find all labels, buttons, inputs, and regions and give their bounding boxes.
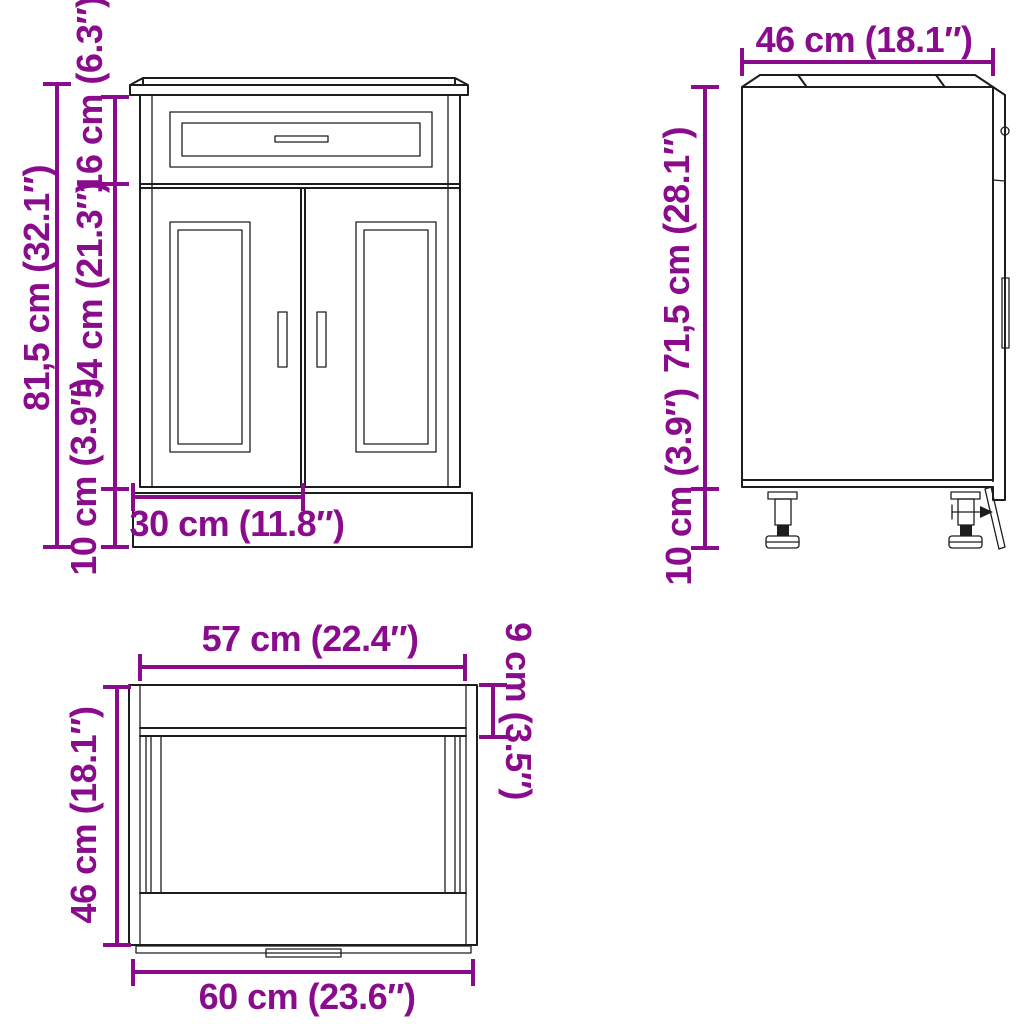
side-view-drawing [693, 50, 1009, 549]
top-view-drawing [105, 656, 505, 984]
front-countertop [130, 78, 468, 95]
front-door-split [301, 188, 305, 487]
top-front-rail [140, 728, 466, 736]
side-door-joint-line [993, 180, 1005, 181]
side-door-edge [993, 87, 1005, 500]
front-door-width-label: 30 cm (11.8″) [130, 503, 345, 545]
side-panel [742, 87, 993, 487]
side-plinth-board [985, 487, 1005, 549]
front-door-right [317, 222, 436, 452]
side-top-face [742, 75, 993, 87]
top-side-panel-edges-right [445, 736, 460, 893]
front-plinth-height-label: 10 cm (3.9″) [63, 378, 105, 575]
front-door-left [170, 222, 287, 452]
dimension-diagram: 81,5 cm (32.1″) 16 cm (6.3″) 54 cm (21.3… [0, 0, 1024, 1024]
front-drawer-front [170, 112, 432, 167]
top-depth-label: 46 cm (18.1″) [63, 707, 105, 924]
side-foot-front [766, 492, 799, 548]
side-depth-label: 46 cm (18.1″) [756, 19, 973, 61]
front-drawer-handle [275, 136, 328, 142]
top-side-panels [140, 685, 466, 945]
top-total-width-label: 60 cm (23.6″) [199, 976, 416, 1018]
front-door-left-handle [278, 312, 287, 367]
side-leg-height-label: 10 cm (3.9″) [658, 388, 700, 585]
front-drawer-panel [182, 123, 420, 156]
top-inner-width-label: 57 cm (22.4″) [202, 618, 419, 660]
front-door-right-handle [317, 312, 326, 367]
top-depth-dim-line [105, 687, 129, 945]
front-total-height-label: 81,5 cm (32.1″) [16, 165, 58, 411]
side-body-height-label: 71,5 cm (28.1″) [656, 127, 698, 373]
front-drawer-doors-gap [140, 184, 460, 188]
side-foot-back [949, 492, 982, 548]
front-door-height-label: 54 cm (21.3″) [69, 182, 111, 399]
top-front-depth-label: 9 cm (3.5″) [497, 622, 539, 800]
top-outer-body [129, 685, 477, 945]
top-side-panel-edges-left [146, 736, 161, 893]
front-drawer-height-label: 16 cm (6.3″) [69, 0, 111, 194]
